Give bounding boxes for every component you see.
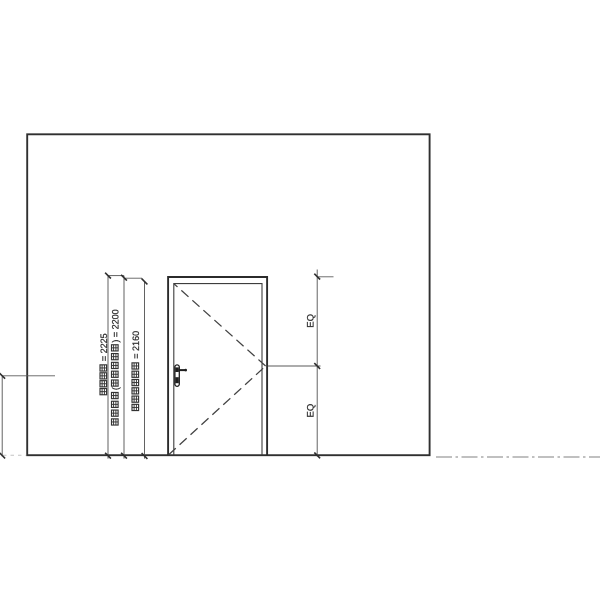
svg-text:EQ: EQ [306,404,317,418]
svg-text:= 2160: = 2160 [131,331,141,361]
svg-text:EQ: EQ [306,314,317,328]
svg-text:(: ( [111,387,121,390]
svg-text:= 2225: = 2225 [99,333,109,363]
svg-text:) = 2200: ) = 2200 [111,309,121,342]
